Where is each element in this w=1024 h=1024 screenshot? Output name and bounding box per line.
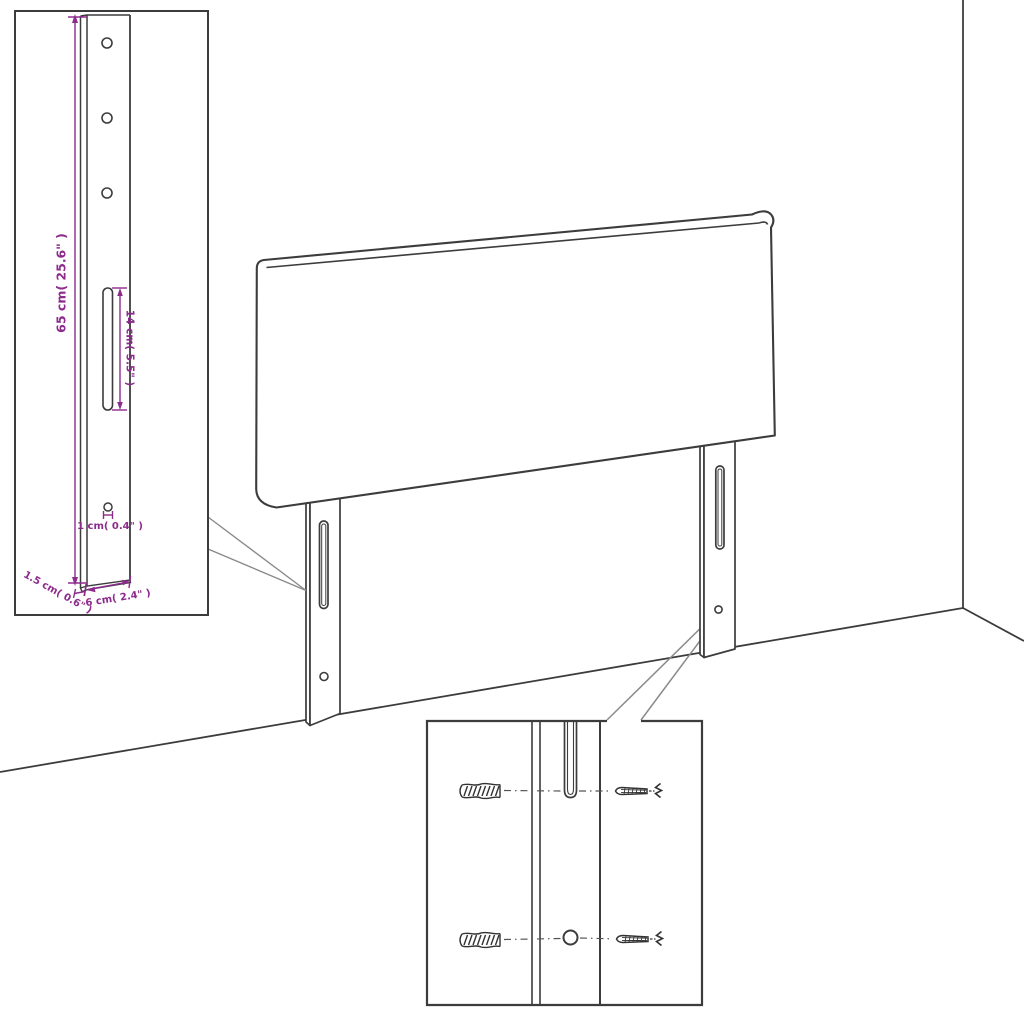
hardware-detail-view <box>427 721 702 1005</box>
leg-front-face <box>310 496 340 726</box>
diagram-canvas: 65 cm( 25.6" ) 14 cm( 5.5" ) 1 cm( 0.4" … <box>0 0 1024 1024</box>
leg-front-face <box>704 439 735 658</box>
bracket-leader-lines <box>208 517 306 591</box>
right-mounting-leg <box>700 439 735 658</box>
headboard-panel <box>256 211 775 507</box>
headboard-assembly <box>256 211 775 725</box>
floor-corner-right-line <box>963 608 1024 641</box>
leader-line <box>208 549 306 591</box>
bracket-hole-label: 1 cm( 0.4" ) <box>77 521 143 532</box>
left-mounting-leg <box>306 496 340 726</box>
leader-line <box>208 517 306 591</box>
bracket-height-label: 65 cm( 25.6" ) <box>54 233 69 333</box>
bracket-detail-view: 65 cm( 25.6" ) 14 cm( 5.5" ) 1 cm( 0.4" … <box>15 11 208 616</box>
bracket-slot-label: 14 cm( 5.5" ) <box>124 310 136 386</box>
headboard-diagram: 65 cm( 25.6" ) 14 cm( 5.5" ) 1 cm( 0.4" … <box>0 0 1024 1024</box>
